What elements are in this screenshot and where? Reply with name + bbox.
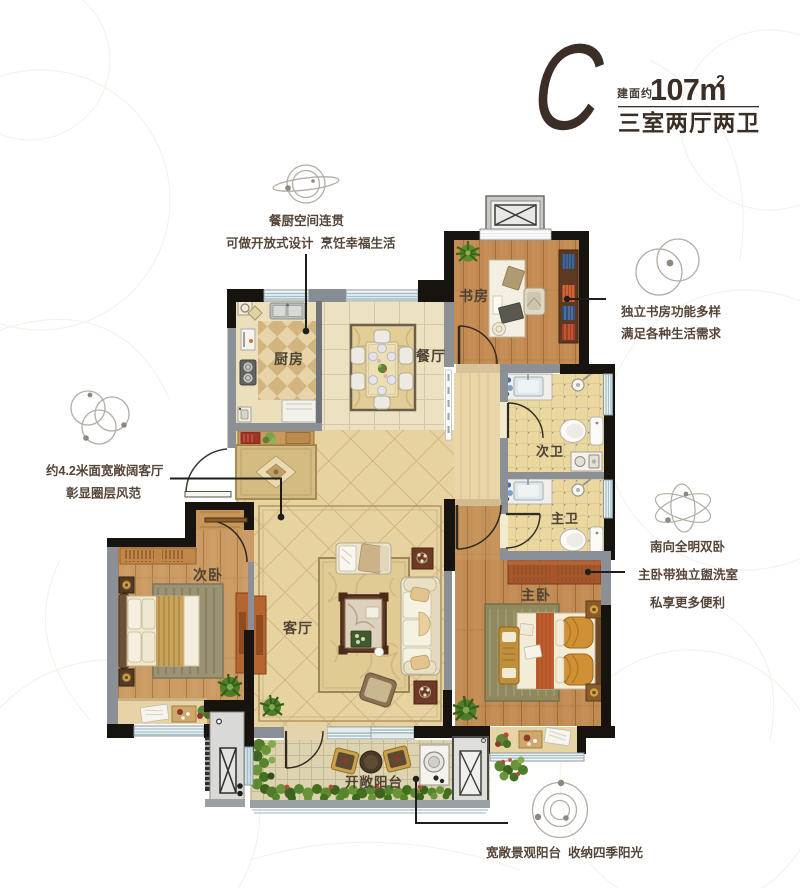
svg-text:厨房: 厨房: [274, 351, 304, 367]
svg-text:三室两厅两卫: 三室两厅两卫: [618, 110, 760, 136]
svg-text:主卧带独立盥洗室: 主卧带独立盥洗室: [638, 567, 739, 582]
svg-text:次卫: 次卫: [536, 444, 564, 459]
svg-text:建面约: 建面约: [617, 86, 653, 100]
svg-text:约4.2米面宽敞阔客厅: 约4.2米面宽敞阔客厅: [46, 463, 164, 478]
svg-text:彰显圈层风范: 彰显圈层风范: [66, 486, 142, 501]
svg-text:C: C: [529, 19, 608, 156]
svg-text:餐厅: 餐厅: [415, 348, 446, 364]
svg-text:主卫: 主卫: [551, 511, 579, 526]
svg-text:书房: 书房: [459, 288, 489, 304]
svg-text:2: 2: [716, 73, 725, 90]
svg-text:餐厨空间连贯: 餐厨空间连贯: [268, 213, 345, 228]
svg-text:主卧: 主卧: [521, 587, 551, 603]
svg-text:宽敞景观阳台 收纳四季阳光: 宽敞景观阳台 收纳四季阳光: [485, 845, 643, 860]
svg-text:可做开放式设计 烹饪幸福生活: 可做开放式设计 烹饪幸福生活: [226, 236, 396, 251]
svg-text:次卧: 次卧: [193, 567, 223, 583]
svg-text:南向全明双卧: 南向全明双卧: [650, 539, 726, 554]
svg-text:开敞阳台: 开敞阳台: [345, 774, 403, 790]
svg-text:107m: 107m: [650, 73, 726, 107]
svg-text:客厅: 客厅: [282, 620, 313, 636]
svg-text:满足各种生活需求: 满足各种生活需求: [621, 326, 722, 341]
svg-text:独立书房功能多样: 独立书房功能多样: [620, 304, 722, 319]
svg-text:私享更多便利: 私享更多便利: [649, 595, 725, 610]
